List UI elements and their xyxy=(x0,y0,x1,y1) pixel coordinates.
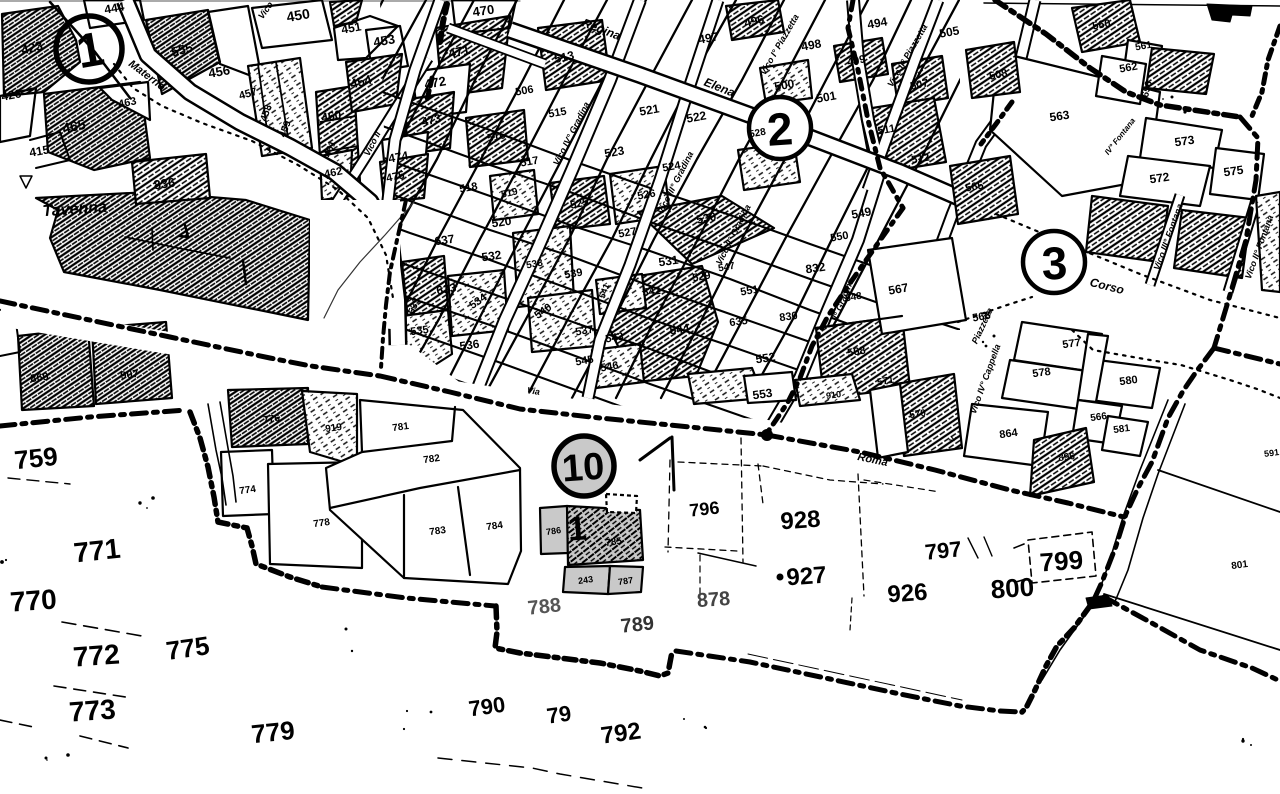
svg-text:520: 520 xyxy=(491,214,513,231)
svg-text:799: 799 xyxy=(1039,545,1084,578)
svg-text:532: 532 xyxy=(481,248,503,265)
svg-text:580: 580 xyxy=(1119,374,1139,388)
svg-text:779: 779 xyxy=(250,715,296,749)
svg-text:79: 79 xyxy=(545,700,573,728)
svg-text:772: 772 xyxy=(72,638,121,672)
svg-text:790: 790 xyxy=(467,692,507,722)
svg-text:637: 637 xyxy=(434,232,456,249)
svg-text:635: 635 xyxy=(729,315,749,329)
svg-text:832: 832 xyxy=(805,260,827,277)
svg-text:531: 531 xyxy=(658,253,680,270)
svg-text:Via: Via xyxy=(526,385,540,397)
svg-text:869: 869 xyxy=(30,371,50,385)
svg-text:563: 563 xyxy=(1049,108,1071,125)
svg-text:836: 836 xyxy=(153,175,177,193)
svg-text:771: 771 xyxy=(72,533,122,569)
svg-text:542: 542 xyxy=(642,285,662,299)
svg-text:787: 787 xyxy=(617,575,633,587)
svg-text:786: 786 xyxy=(545,525,561,537)
svg-text:573: 573 xyxy=(1174,133,1196,150)
svg-text:770: 770 xyxy=(9,583,58,617)
svg-text:792: 792 xyxy=(599,717,642,749)
svg-text:796: 796 xyxy=(688,498,720,521)
svg-text:759: 759 xyxy=(13,441,59,475)
svg-text:878: 878 xyxy=(696,588,731,612)
svg-text:10: 10 xyxy=(561,446,606,491)
svg-text:775: 775 xyxy=(164,630,211,666)
svg-text:797: 797 xyxy=(924,536,963,565)
svg-text:536: 536 xyxy=(459,337,481,354)
svg-text:830: 830 xyxy=(779,310,799,324)
svg-text:552: 552 xyxy=(755,350,777,367)
svg-text:572: 572 xyxy=(1149,170,1171,187)
svg-text:928: 928 xyxy=(780,506,822,536)
svg-text:926: 926 xyxy=(887,579,929,609)
svg-text:800: 800 xyxy=(990,572,1035,605)
svg-text:575: 575 xyxy=(1223,163,1245,180)
svg-text:470: 470 xyxy=(472,2,496,20)
svg-text:910: 910 xyxy=(825,389,841,401)
svg-text:577: 577 xyxy=(1062,337,1082,351)
svg-text:773: 773 xyxy=(68,693,117,727)
svg-text:907: 907 xyxy=(120,368,140,382)
svg-text:788: 788 xyxy=(527,594,562,619)
svg-text:591: 591 xyxy=(1263,447,1279,459)
svg-text:789: 789 xyxy=(620,612,655,637)
svg-text:243: 243 xyxy=(577,574,593,586)
svg-text:2: 2 xyxy=(765,102,794,156)
svg-text:535: 535 xyxy=(410,324,430,338)
svg-text:1: 1 xyxy=(566,509,588,548)
svg-text:3: 3 xyxy=(1041,237,1068,290)
svg-text:553: 553 xyxy=(752,386,774,403)
svg-text:578: 578 xyxy=(1032,366,1052,380)
svg-text:544: 544 xyxy=(669,321,691,338)
svg-text:927: 927 xyxy=(786,562,828,592)
